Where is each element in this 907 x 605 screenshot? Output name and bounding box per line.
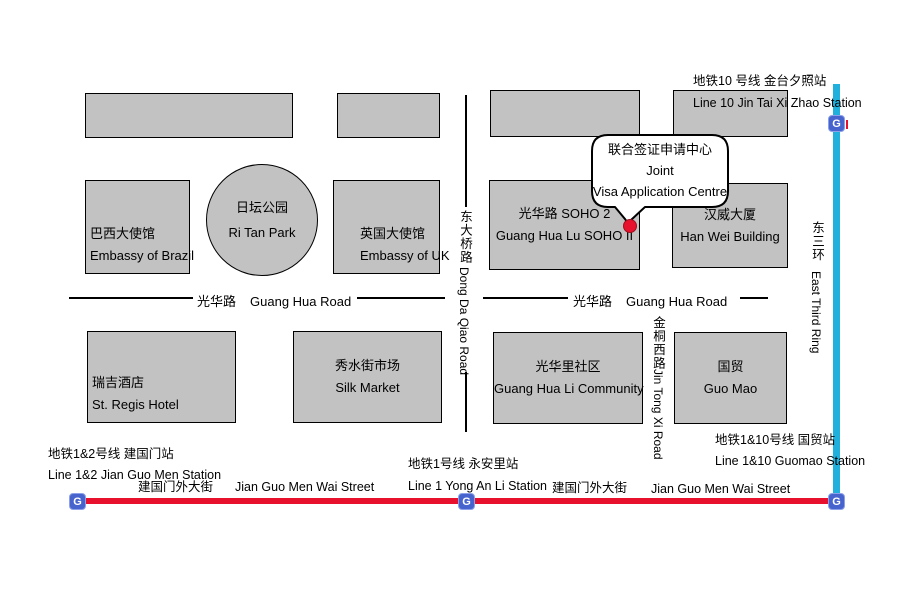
- guanghuali-community-label: 光华里社区 Guang Hua Li Community: [494, 356, 642, 400]
- station-yonganli-zh: 地铁1号线 永安里站: [408, 453, 547, 475]
- silk-market-label: 秀水街市场 Silk Market: [294, 355, 441, 399]
- hanwei-label-zh: 汉威大厦: [673, 204, 787, 226]
- guanghua-road-west-zh: 光华路: [197, 291, 236, 312]
- guanghua-road-east-zh: 光华路: [573, 291, 612, 312]
- callout-text-zh: 联合签证申请中心: [592, 139, 728, 160]
- st-regis-hotel-label-zh: 瑞吉酒店: [92, 372, 179, 394]
- dongdaqiao-road-line-bottom: [465, 372, 467, 432]
- hanwei-label-en: Han Wei Building: [673, 226, 787, 248]
- building-block-1: [85, 93, 293, 138]
- location-marker-dot: [623, 219, 637, 233]
- ritan-park-label-en: Ri Tan Park: [207, 220, 317, 245]
- guanghuali-community-label-en: Guang Hua Li Community: [494, 378, 642, 400]
- embassy-of-brazil-label-zh: 巴西大使馆: [90, 223, 194, 245]
- metro-logo-icon-yonganli: G: [458, 493, 475, 510]
- st-regis-hotel-label-en: St. Regis Hotel: [92, 394, 179, 416]
- station-tick-mark: [846, 120, 848, 129]
- station-guomao-en: Line 1&10 Guomao Station: [715, 451, 865, 472]
- embassy-of-brazil-building: 巴西大使馆 Embassy of Brazil: [85, 180, 190, 274]
- guanghua-road-line-3: [483, 297, 568, 299]
- building-block-3: [490, 90, 640, 137]
- st-regis-hotel-building: 瑞吉酒店 St. Regis Hotel: [87, 331, 236, 423]
- callout-text-en2: Visa Application Centre: [592, 181, 728, 202]
- station-label-jintaixizhao: 地铁10 号线 金台夕照站 Line 10 Jin Tai Xi Zhao St…: [693, 70, 862, 114]
- embassy-of-uk-label: 英国大使馆 Embassy of UK: [360, 223, 450, 267]
- callout-text: 联合签证申请中心 Joint Visa Application Centre: [592, 139, 728, 202]
- station-jintaixizhao-zh: 地铁10 号线 金台夕照站: [693, 70, 862, 92]
- embassy-of-brazil-label-en: Embassy of Brazil: [90, 245, 194, 267]
- location-map: 巴西大使馆 Embassy of Brazil 日坛公园 Ri Tan Park…: [0, 0, 907, 605]
- hanwei-label: 汉威大厦 Han Wei Building: [673, 204, 787, 248]
- jianguomenwai-street-label-east-en: Jian Guo Men Wai Street: [651, 478, 790, 500]
- guanghua-road-line-4: [740, 297, 768, 299]
- ritan-park-circle: 日坛公园 Ri Tan Park: [206, 164, 318, 276]
- station-jianguomen-zh: 地铁1&2号线 建国门站: [48, 444, 221, 465]
- guanghuali-community-label-zh: 光华里社区: [494, 356, 642, 378]
- jintongxi-road-label-zh: 金桐西路: [649, 316, 668, 370]
- metro-logo-glyph: G: [832, 118, 841, 130]
- metro-logo-glyph: G: [73, 496, 82, 508]
- silk-market-building: 秀水街市场 Silk Market: [293, 331, 442, 423]
- guanghua-road-west-en: Guang Hua Road: [250, 291, 351, 312]
- metro-logo-glyph: G: [462, 496, 471, 508]
- guanghua-road-label-west: 光华路 Guang Hua Road: [197, 291, 351, 312]
- ritan-park-label-zh: 日坛公园: [207, 195, 317, 220]
- guomao-building: 国贸 Guo Mao: [674, 332, 787, 424]
- ritan-park-label: 日坛公园 Ri Tan Park: [207, 195, 317, 245]
- station-guomao-zh: 地铁1&10号线 国贸站: [715, 430, 865, 451]
- guanghua-road-line-1: [69, 297, 193, 299]
- embassy-of-uk-building: 英国大使馆 Embassy of UK: [333, 180, 440, 274]
- building-block-2: [337, 93, 440, 138]
- jianguomenwai-street-label-east-zh: 建国门外大街: [552, 477, 627, 499]
- guanghua-road-line-2: [357, 297, 445, 299]
- soho2-label-en: Guang Hua Lu SOHO II: [490, 225, 639, 247]
- metro-logo-icon-jianguomen: G: [69, 493, 86, 510]
- embassy-of-uk-label-en: Embassy of UK: [360, 245, 450, 267]
- dongdaqiao-road-label-en: Dong Da Qiao Road: [457, 267, 471, 367]
- dongdaqiao-road-label-zh: 东大桥路: [456, 210, 475, 264]
- station-label-jianguomen: 地铁1&2号线 建国门站 Line 1&2 Jian Guo Men Stati…: [48, 444, 221, 486]
- guomao-label-zh: 国贸: [675, 356, 786, 378]
- station-yonganli-en: Line 1 Yong An Li Station: [408, 475, 547, 497]
- jintongxi-road-label-en: Jin Tong Xi Road: [651, 369, 665, 453]
- silk-market-label-en: Silk Market: [294, 377, 441, 399]
- guanghuali-community-building: 光华里社区 Guang Hua Li Community: [493, 332, 643, 424]
- guanghua-road-east-en: Guang Hua Road: [626, 291, 727, 312]
- callout-text-en1: Joint: [592, 160, 728, 181]
- guomao-label-en: Guo Mao: [675, 378, 786, 400]
- station-jianguomen-en: Line 1&2 Jian Guo Men Station: [48, 465, 221, 486]
- east-third-ring-label-zh: 东三环: [808, 221, 827, 262]
- st-regis-hotel-label: 瑞吉酒店 St. Regis Hotel: [92, 372, 179, 416]
- silk-market-label-zh: 秀水街市场: [294, 355, 441, 377]
- embassy-of-uk-label-zh: 英国大使馆: [360, 223, 450, 245]
- embassy-of-brazil-label: 巴西大使馆 Embassy of Brazil: [90, 223, 194, 267]
- soho2-label-zh: 光华路 SOHO 2: [490, 203, 639, 225]
- guomao-label: 国贸 Guo Mao: [675, 356, 786, 400]
- metro-logo-icon-guomao: G: [828, 493, 845, 510]
- station-label-guomao: 地铁1&10号线 国贸站 Line 1&10 Guomao Station: [715, 430, 865, 472]
- east-third-ring-label-en: East Third Ring: [809, 271, 823, 351]
- metro-logo-icon-jintaixizhao: G: [828, 115, 845, 132]
- jianguomenwai-west-en: Jian Guo Men Wai Street: [235, 476, 374, 498]
- metro-logo-glyph: G: [832, 496, 841, 508]
- soho2-label: 光华路 SOHO 2 Guang Hua Lu SOHO II: [490, 203, 639, 247]
- dongdaqiao-road-line-top: [465, 95, 467, 207]
- guanghua-road-label-east: 光华路 Guang Hua Road: [573, 291, 727, 312]
- station-label-yonganli: 地铁1号线 永安里站 Line 1 Yong An Li Station: [408, 453, 547, 497]
- station-jintaixizhao-en: Line 10 Jin Tai Xi Zhao Station: [693, 92, 862, 114]
